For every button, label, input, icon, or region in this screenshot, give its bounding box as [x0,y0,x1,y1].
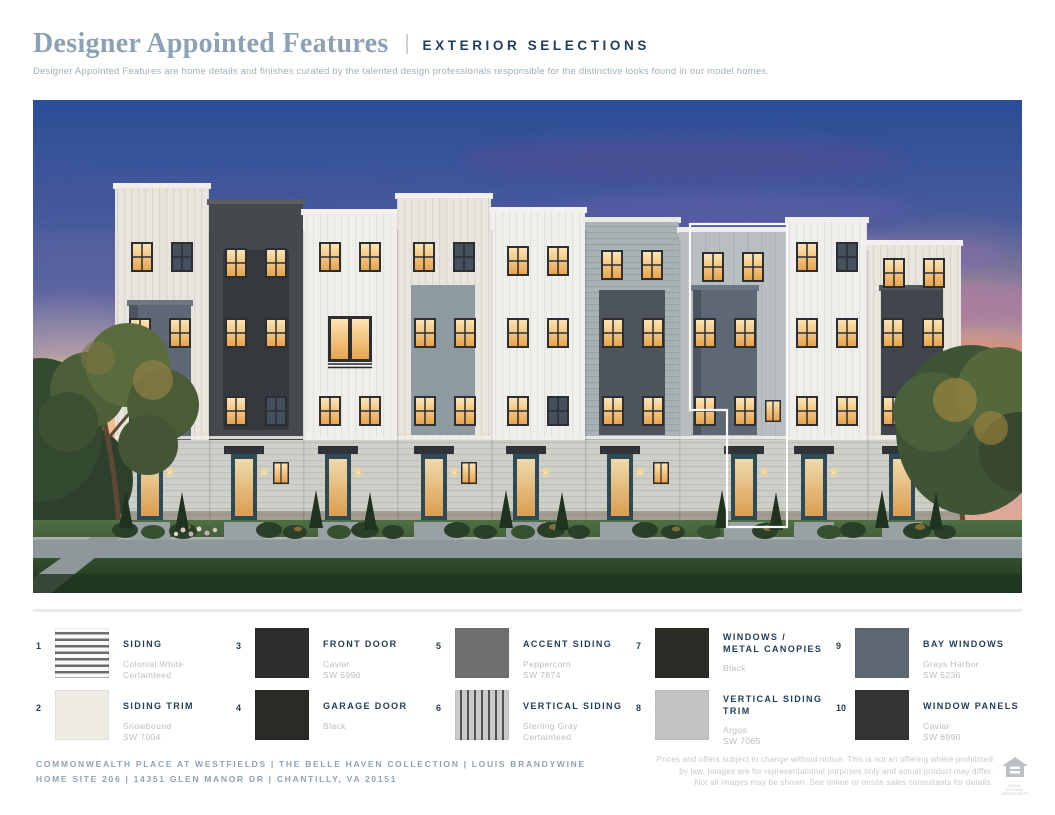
swatch-siding [55,628,109,678]
swatch-siding-trim [55,690,109,740]
legend-sub: Sterling Gray Certainteed [523,721,622,743]
legend-label: GARAGE DOOR [323,701,407,713]
legend-number: 8 [636,690,655,713]
swatch-front-door [255,628,309,678]
footer-line-1: COMMONWEALTH PLACE AT WESTFIELDS | THE B… [36,757,586,772]
legend-sub: Black [723,663,822,674]
legend-label: BAY WINDOWS [923,639,1004,651]
page-description: Designer Appointed Features are home det… [33,66,769,77]
swatch-windows-metal-canopies [655,628,709,678]
exterior-rendering [33,100,1022,593]
legend-sub: Black [323,721,407,732]
page-title: Designer Appointed Features [33,28,389,60]
legend-item-bay-windows: 9 BAY WINDOWS Grays Harbor SW 6236 [836,628,1034,681]
legend-item-front-door: 3 FRONT DOOR Caviar SW 6990 [236,628,434,681]
legend-number: 7 [636,628,655,651]
footer-community-info: COMMONWEALTH PLACE AT WESTFIELDS | THE B… [36,757,586,787]
legend-label: WINDOWS / METAL CANOPIES [723,632,822,655]
legend-label: SIDING TRIM [123,701,194,713]
equal-housing-logo: EQUAL HOUSING OPPORTUNITY [999,756,1031,796]
legend-item-windows-metal-canopies: 7 WINDOWS / METAL CANOPIES Black [636,628,834,678]
legend-label: FRONT DOOR [323,639,398,651]
legend-number: 3 [236,628,255,651]
swatch-garage-door [255,690,309,740]
legend-label: ACCENT SIDING [523,639,612,651]
equal-housing-house-icon [1000,756,1030,778]
legend-item-siding: 1 SIDING Colonial White Certainteed [36,628,234,681]
legend-sub: Caviar SW 6990 [323,659,398,681]
legend-item-accent-siding: 5 ACCENT SIDING Peppercorn SW 7674 [436,628,634,681]
footer-line-2: HOME SITE 206 | 14351 GLEN MANOR DR | CH… [36,772,586,787]
legend-item-vertical-siding-trim: 8 VERTICAL SIDING TRIM Argos SW 7065 [636,690,834,747]
townhomes-dusk-illustration [33,100,1022,593]
section-label: EXTERIOR SELECTIONS [423,35,650,53]
legend-sub: Snowbound SW 7004 [123,721,194,743]
legend-sub: Colonial White Certainteed [123,659,183,681]
legend-item-siding-trim: 2 SIDING TRIM Snowbound SW 7004 [36,690,234,743]
legal-disclaimer: Prices and offers subject to change with… [650,754,993,789]
townhome-facades [113,183,963,525]
legend-label: SIDING [123,639,183,651]
legend-sub: Caviar SW 6990 [923,721,1019,743]
legend-label: WINDOW PANELS [923,701,1019,713]
swatch-bay-windows [855,628,909,678]
title-divider-bar [406,34,408,54]
legend-item-garage-door: 4 GARAGE DOOR Black [236,690,434,740]
legend-item-vertical-siding: 6 VERTICAL SIDING Sterling Gray Certaint… [436,690,634,743]
legend-label: VERTICAL SIDING TRIM [723,694,822,717]
section-divider [33,609,1022,612]
swatch-vertical-siding-trim [655,690,709,740]
swatch-window-panels [855,690,909,740]
equal-housing-label: EQUAL HOUSING OPPORTUNITY [999,784,1031,796]
legend-sub: Peppercorn SW 7674 [523,659,612,681]
legend-label: VERTICAL SIDING [523,701,622,713]
legend-number: 5 [436,628,455,651]
legend-number: 1 [36,628,55,651]
swatch-vertical-siding [455,690,509,740]
legend-number: 2 [36,690,55,713]
legend-number: 9 [836,628,855,651]
legend-sub: Argos SW 7065 [723,725,822,747]
legend-number: 6 [436,690,455,713]
legend-item-window-panels: 10 WINDOW PANELS Caviar SW 6990 [836,690,1034,743]
swatch-accent-siding [455,628,509,678]
page-header: Designer Appointed Features EXTERIOR SEL… [33,28,650,60]
legend-sub: Grays Harbor SW 6236 [923,659,1004,681]
legend-number: 10 [836,690,855,713]
legend-number: 4 [236,690,255,713]
